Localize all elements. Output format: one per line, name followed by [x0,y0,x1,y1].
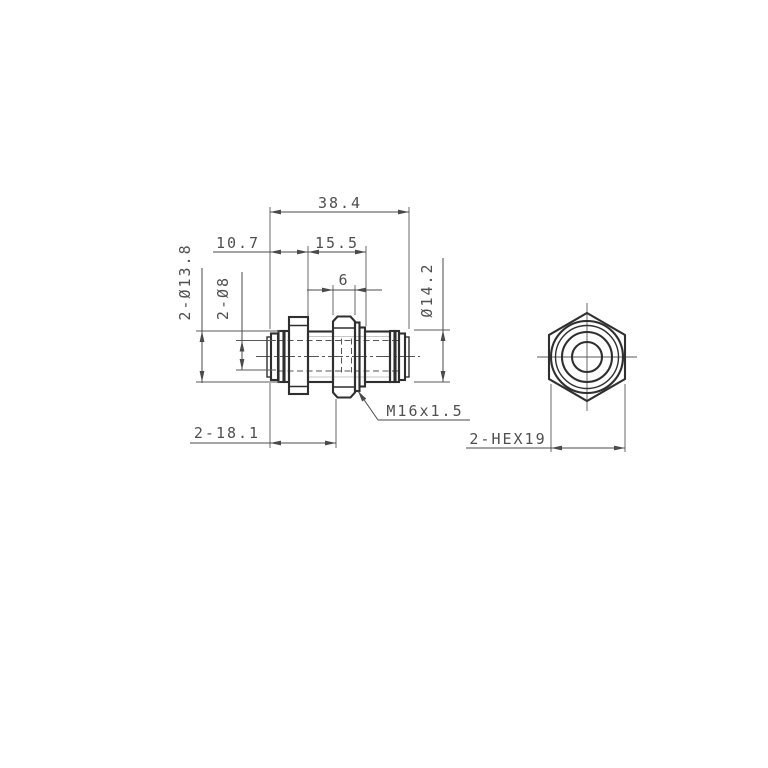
drawing-page: 38.4 10.7 15.5 6 2-18.1 M16x1.5 2-Ø13.8 … [0,0,768,768]
arrow-10-7-left [270,250,281,255]
arrow-6-right [355,288,366,293]
dim-overall-length: 38.4 [318,194,362,212]
arrow-overall-right [398,210,409,215]
arrow-hex-right [614,446,625,451]
arrow-collet-od-bottom [200,371,205,382]
arrow-overall-left [270,210,281,215]
arrow-hex-left [551,446,562,451]
right-cap-sliver [405,337,409,377]
dim-hex-size: 2-HEX19 [469,430,546,448]
dim-collet-diameter: 2-Ø13.8 [176,243,194,320]
end-view-part [537,303,637,411]
arrow-6-left [322,288,333,293]
left-flange-nut [289,317,308,394]
arrow-thread-leader [358,391,366,402]
side-view-dimensions: 38.4 10.7 15.5 6 2-18.1 M16x1.5 2-Ø13.8 … [176,194,470,448]
dim-thread-spec: M16x1.5 [386,402,463,420]
dim-thread-section-length: 15.5 [315,234,359,252]
arrow-depth-right [325,441,336,446]
arrow-body-od-top [441,330,446,341]
arrow-collet-od-top [200,331,205,342]
dim-hex-nut-width: 6 [338,271,349,289]
arrow-tube-od-top [240,341,245,352]
arrow-depth-left [270,441,281,446]
end-view-dimensions: 2-HEX19 [466,384,625,452]
dim-body-diameter: Ø14.2 [418,262,436,317]
arrow-body-od-bottom [441,371,446,382]
side-view-part [256,317,420,398]
arrow-tube-od-bottom [240,359,245,370]
arrow-10-7-right [297,250,308,255]
dim-end-to-nut-length: 2-18.1 [194,424,260,442]
technical-drawing-canvas: 38.4 10.7 15.5 6 2-18.1 M16x1.5 2-Ø13.8 … [0,0,768,768]
dim-tube-diameter: 2-Ø8 [214,276,232,320]
right-collet-ring-1 [390,331,395,382]
dim-cap-section-length: 10.7 [216,234,260,252]
